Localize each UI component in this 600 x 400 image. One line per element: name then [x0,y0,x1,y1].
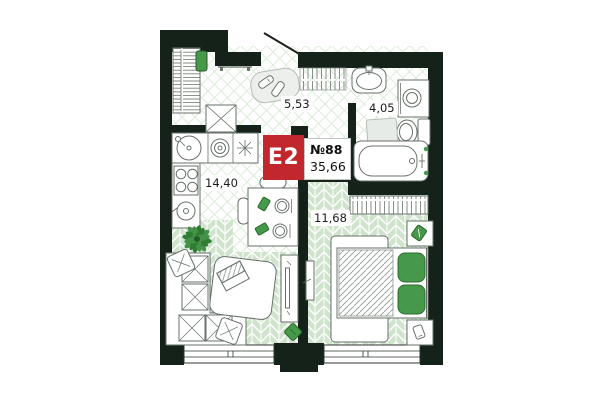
dining-chair-icon [238,198,249,224]
hood-asterisk-icon [237,140,253,156]
wall-bottom-pier-ext [280,365,318,372]
bathroom-area-label: 4,05 [366,100,398,116]
nightstand-icon [407,320,433,345]
bed-pillow-icon [398,253,425,282]
wall-right [428,52,443,365]
bath-mat-icon [366,118,398,144]
window-bedroom-icon [324,345,420,363]
bed-pillow-icon [398,285,425,314]
floor-plan-drawing [0,0,600,400]
cooktop-icon [174,166,198,195]
hall-green-organizer-icon [196,51,207,71]
coffee-table-icon [209,255,278,320]
tv-stand-icon [281,255,298,322]
wall-bottom-right [420,343,443,365]
unit-type-badge: E2 [263,135,304,180]
unit-number-label: №88 [310,142,350,158]
doormat-icon [300,68,346,90]
bathroom-sink-icon [352,66,386,93]
burner-icon [211,139,229,157]
floor-plan-canvas: 5,53 4,05 14,40 11,68 E2 №88 35,66 [0,0,600,400]
wall-bottom-left [160,343,184,365]
nightstand-icon [407,221,433,246]
window-living-icon [184,345,274,363]
bedroom-wardrobe-icon [350,196,428,214]
unit-info-card: №88 35,66 [304,138,351,180]
washing-machine-icon [398,80,429,117]
bathtub-icon [354,141,428,181]
wall-entry-step [215,52,261,66]
hallway-area-label: 5,53 [281,96,313,112]
wall-bottom-pier [274,343,324,365]
bedroom-area-label: 11,68 [311,210,350,226]
unit-total-area-label: 35,66 [310,158,350,175]
shaft-box-icon [206,105,236,132]
kitchen-area-label: 14,40 [202,175,241,191]
tv-icon [286,268,290,308]
